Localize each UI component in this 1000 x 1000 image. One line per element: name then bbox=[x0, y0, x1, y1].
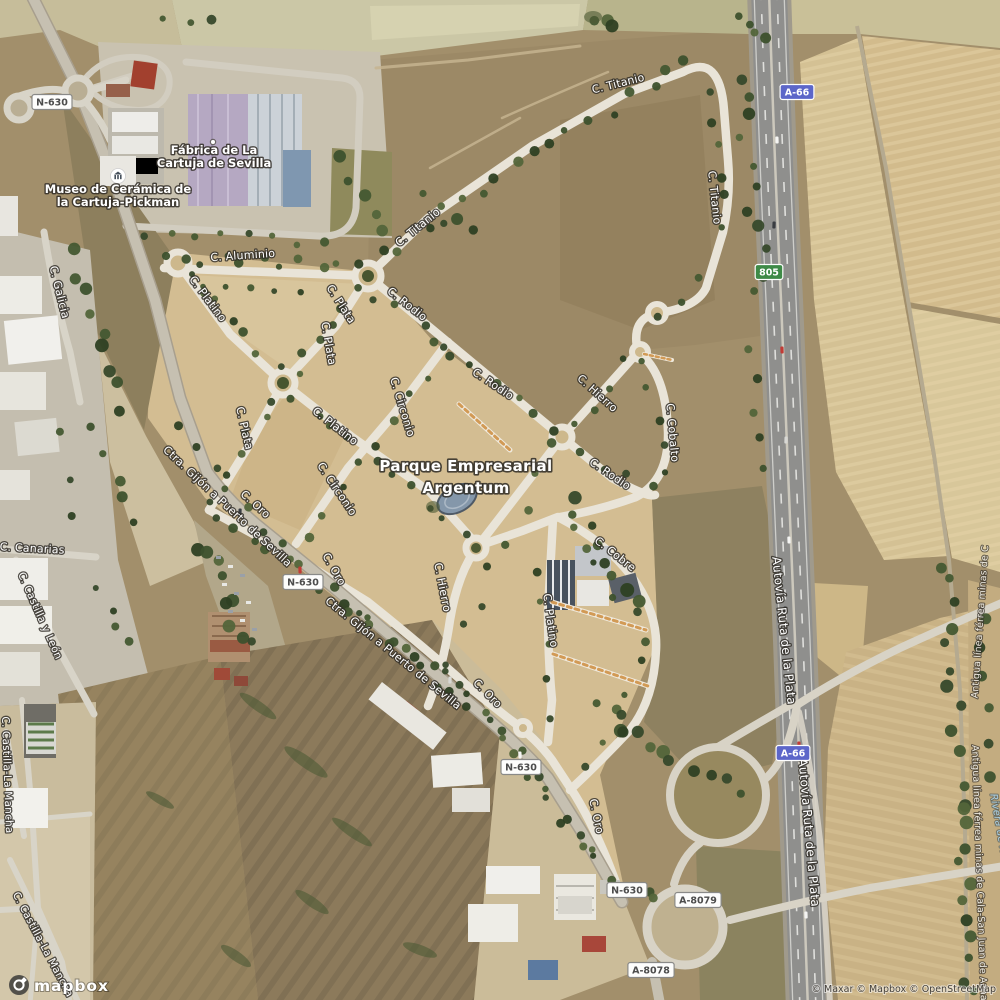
svg-text:A-66: A-66 bbox=[781, 749, 806, 760]
route-shield-a-66: A-66 bbox=[780, 85, 814, 100]
route-shield-n-630: N-630 bbox=[501, 760, 541, 775]
mapbox-wordmark: mapbox bbox=[34, 977, 109, 995]
area-label-parque-empresarial-argentum: Parque Empresarial bbox=[379, 457, 552, 475]
route-shield-n-630: N-630 bbox=[283, 575, 323, 590]
svg-text:A-66: A-66 bbox=[785, 88, 810, 99]
svg-text:N-630: N-630 bbox=[287, 578, 319, 589]
map-canvas[interactable]: C. AluminioC. TitanioC. TitanioC. Titani… bbox=[0, 0, 1000, 1000]
map-attribution[interactable]: © Maxar © Mapbox © OpenStreetMap bbox=[812, 984, 996, 995]
svg-text:N-630: N-630 bbox=[36, 98, 68, 109]
svg-text:N-630: N-630 bbox=[611, 886, 643, 897]
svg-text:A-8079: A-8079 bbox=[679, 896, 717, 907]
route-shield-a-8079: A-8079 bbox=[675, 893, 721, 908]
svg-text:A-8078: A-8078 bbox=[632, 966, 670, 977]
fabrica-cartuja-label: Cartuja de Sevilla bbox=[157, 156, 271, 170]
route-shield-805: 805 bbox=[755, 265, 783, 280]
svg-text:805: 805 bbox=[759, 268, 779, 279]
satellite-map-viewport[interactable]: C. AluminioC. TitanioC. TitanioC. Titani… bbox=[0, 0, 1000, 1000]
route-shield-n-630: N-630 bbox=[607, 883, 647, 898]
route-shield-a-8078: A-8078 bbox=[628, 963, 674, 978]
museo-ceramica-label: la Cartuja-Pickman bbox=[57, 195, 180, 209]
area-label-parque-empresarial-argentum: Argentum bbox=[422, 479, 509, 497]
route-shield-n-630: N-630 bbox=[32, 95, 72, 110]
svg-text:N-630: N-630 bbox=[505, 763, 537, 774]
route-shield-a-66: A-66 bbox=[776, 746, 810, 761]
mapbox-logo-icon bbox=[9, 975, 29, 995]
museo-ceramica-label: Museo de Cerámica de bbox=[45, 182, 192, 196]
mapbox-logo[interactable]: mapbox bbox=[9, 975, 109, 995]
fabrica-cartuja-label: Fábrica de La bbox=[171, 143, 258, 157]
